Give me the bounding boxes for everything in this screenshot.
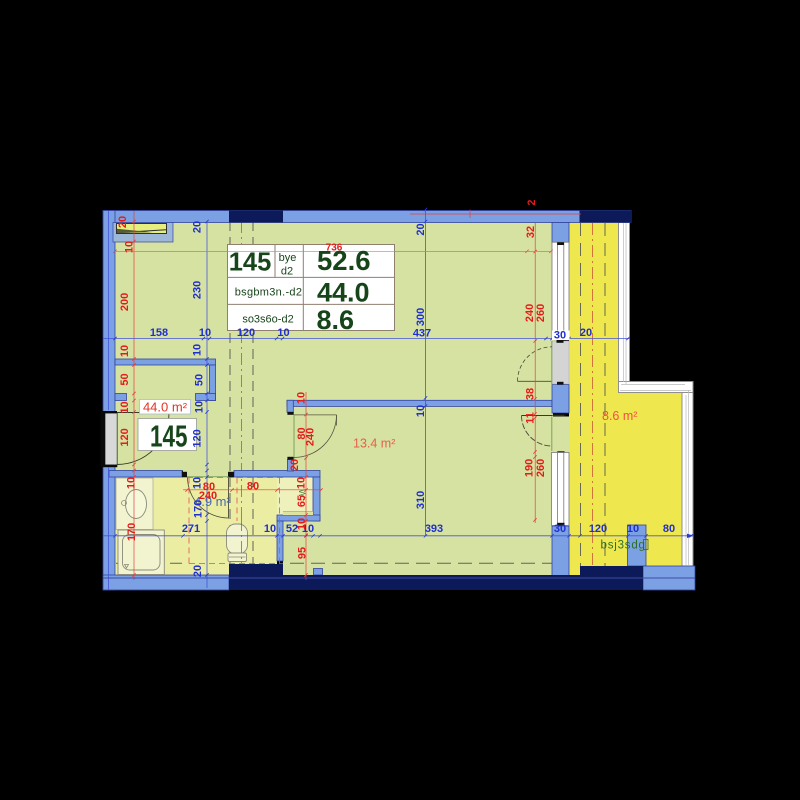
svg-text:10: 10 (296, 392, 308, 404)
svg-text:10: 10 (199, 327, 211, 339)
svg-text:310: 310 (415, 491, 427, 509)
svg-text:10: 10 (119, 345, 131, 357)
svg-text:10: 10 (192, 477, 204, 489)
svg-text:bye: bye (279, 252, 297, 264)
svg-text:10: 10 (124, 241, 136, 253)
svg-text:80: 80 (663, 523, 675, 535)
svg-text:8.6: 8.6 (317, 305, 355, 335)
svg-text:10: 10 (192, 344, 204, 356)
svg-text:20: 20 (415, 223, 427, 235)
svg-text:50: 50 (119, 373, 131, 385)
svg-text:300: 300 (415, 308, 427, 326)
svg-text:10: 10 (126, 477, 138, 489)
svg-text:170: 170 (193, 500, 205, 518)
svg-text:145: 145 (229, 249, 272, 277)
svg-text:10: 10 (415, 405, 427, 417)
svg-text:20: 20 (117, 216, 129, 228)
svg-text:32: 32 (525, 226, 537, 238)
svg-text:393: 393 (425, 523, 443, 535)
svg-text:38: 38 (525, 388, 537, 400)
svg-text:10: 10 (296, 518, 308, 530)
svg-text:d2: d2 (281, 266, 293, 278)
svg-text:80: 80 (247, 481, 259, 493)
svg-text:65: 65 (296, 495, 308, 507)
svg-text:95: 95 (297, 547, 309, 559)
svg-text:13.4 m²: 13.4 m² (353, 437, 395, 451)
svg-text:20: 20 (580, 327, 592, 339)
svg-text:200: 200 (119, 293, 131, 311)
svg-text:120: 120 (237, 327, 255, 339)
svg-text:260: 260 (535, 459, 547, 477)
svg-text:240: 240 (199, 490, 217, 502)
svg-text:145: 145 (150, 419, 188, 454)
svg-text:30: 30 (554, 330, 566, 342)
svg-text:8.6 m²: 8.6 m² (602, 409, 637, 423)
svg-text:50: 50 (194, 374, 206, 386)
svg-text:10: 10 (119, 401, 131, 413)
svg-text:so3s6o-d2: so3s6o-d2 (242, 314, 293, 326)
svg-text:120: 120 (119, 428, 131, 446)
svg-text:10: 10 (627, 523, 639, 535)
svg-text:240: 240 (305, 428, 317, 446)
svg-text:10: 10 (264, 523, 276, 535)
svg-text:437: 437 (413, 328, 431, 340)
svg-text:170: 170 (126, 523, 138, 541)
svg-text:230: 230 (192, 281, 204, 299)
svg-text:bsgbm3n.-d2: bsgbm3n.-d2 (235, 287, 303, 299)
svg-text:10: 10 (296, 477, 308, 489)
svg-text:44.0 m²: 44.0 m² (143, 400, 188, 415)
svg-text:120: 120 (589, 523, 607, 535)
svg-text:30: 30 (554, 523, 566, 535)
svg-text:20: 20 (192, 565, 204, 577)
svg-text:158: 158 (150, 327, 168, 339)
svg-text:20: 20 (289, 459, 301, 471)
svg-text:120: 120 (192, 429, 204, 447)
svg-text:20: 20 (192, 221, 204, 233)
svg-text:2: 2 (526, 199, 538, 205)
svg-text:10: 10 (277, 327, 289, 339)
svg-text:11: 11 (525, 412, 537, 424)
svg-text:271: 271 (182, 523, 200, 535)
svg-text:44.0: 44.0 (317, 277, 370, 307)
svg-text:260: 260 (535, 304, 547, 322)
svg-text:190: 190 (524, 459, 536, 477)
svg-text:bsj3sdg: bsj3sdg (601, 540, 646, 552)
svg-text:736: 736 (326, 243, 343, 254)
svg-text:10: 10 (194, 401, 206, 413)
